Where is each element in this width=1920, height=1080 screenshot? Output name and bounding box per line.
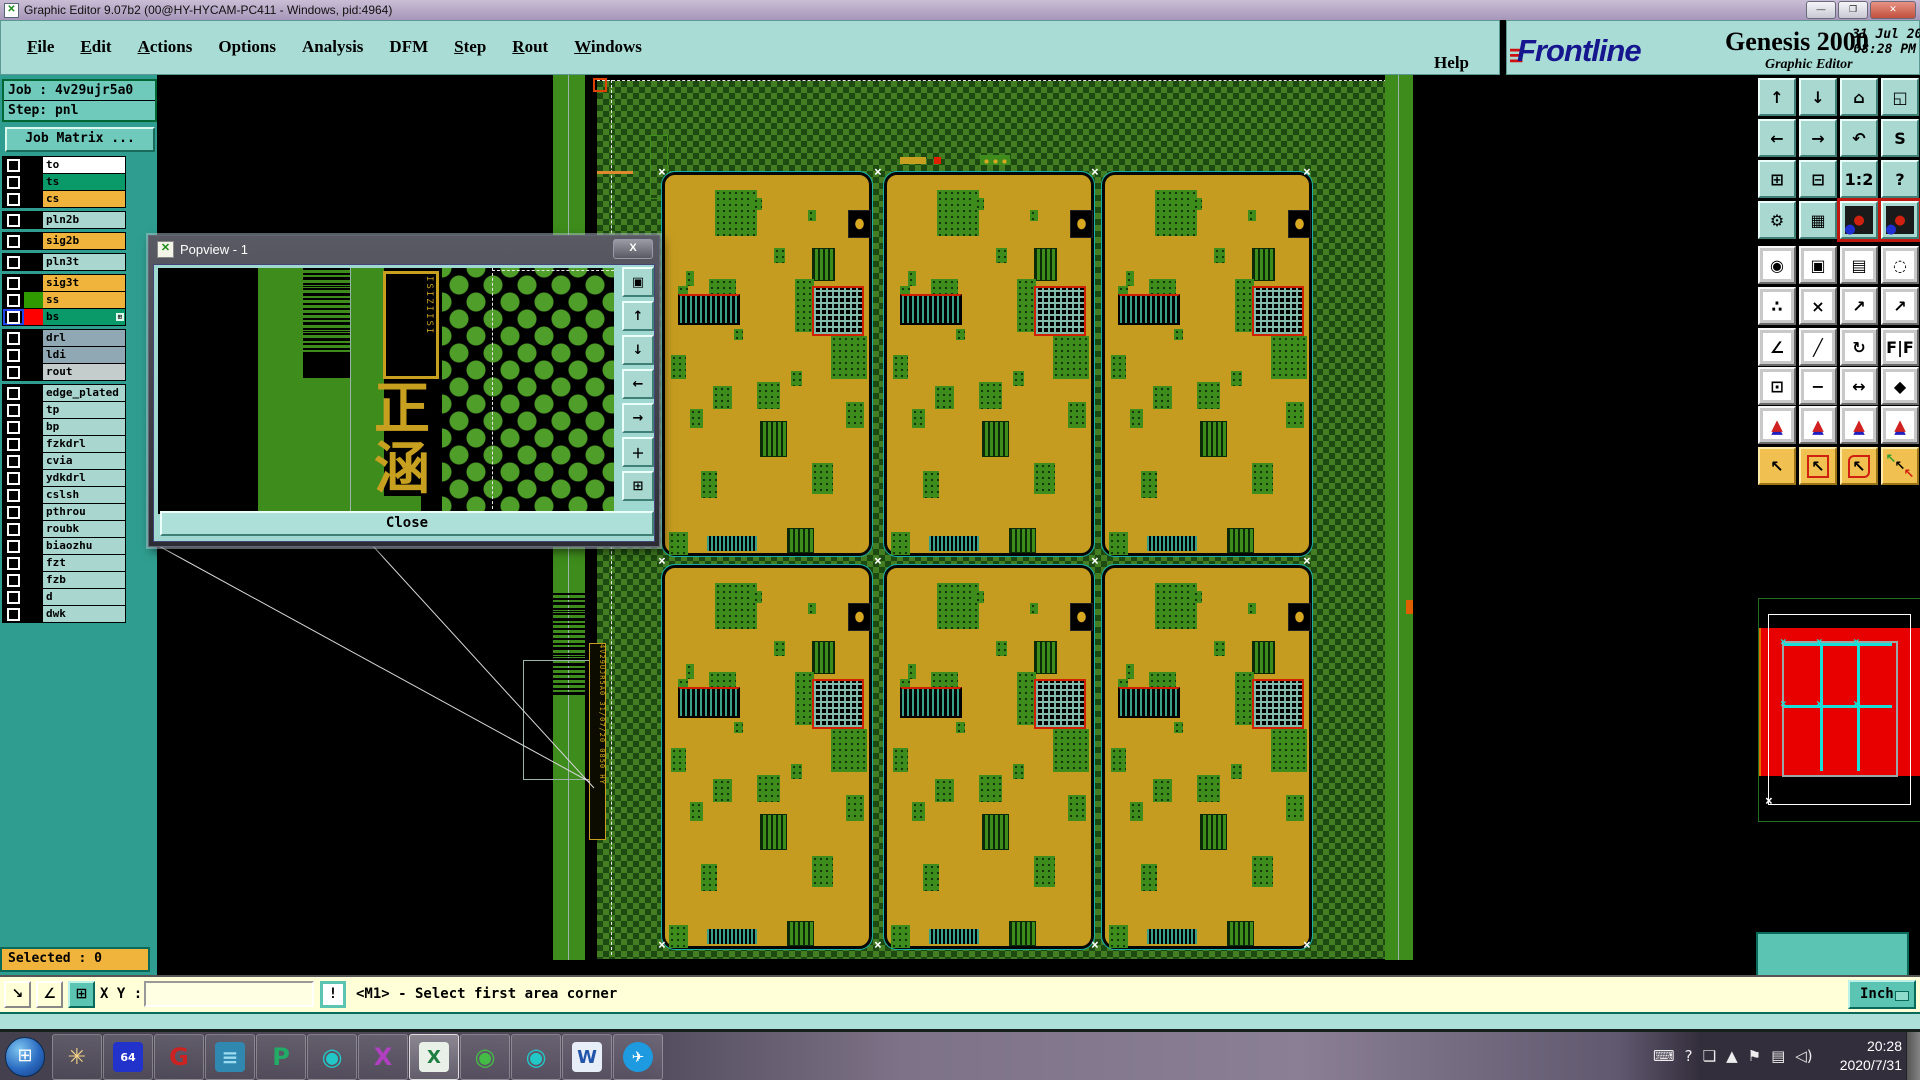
board-patch [690,409,703,428]
layer-name-ss[interactable]: ss [43,292,125,308]
board-chipgrid [982,814,1009,851]
line-measure-button[interactable]: − [1799,367,1837,405]
layer-checkbox-sig3t[interactable] [3,275,24,291]
board-patch [1286,795,1305,822]
layer-name-ydkdrl[interactable]: ydkdrl [43,470,125,486]
layer-swatch-rout[interactable] [24,364,43,380]
xshell-app-icon: ✳ [62,1042,92,1072]
pan-right-button[interactable]: → [622,403,654,433]
layer-name-pln2b[interactable]: pln2b [43,212,125,228]
board-patch [996,248,1007,263]
layer-row-fzkdrl[interactable]: fzkdrl [3,436,125,453]
notepad-app[interactable]: ≡ [205,1034,255,1080]
panel-board-6[interactable] [1102,565,1312,949]
layer-swatch-biaozhu[interactable] [24,538,43,554]
layer-checkbox-to[interactable] [3,157,24,173]
panel-board-5[interactable] [884,565,1094,949]
overview-x-mark: × [1853,700,1860,708]
layer-name-pln3t[interactable]: pln3t [43,254,125,270]
menu-edit[interactable]: Edit [80,37,111,57]
panel-outline-box [523,660,591,780]
panel-board-2[interactable] [884,172,1094,556]
excel-app[interactable]: X [409,1034,459,1080]
layer-swatch-bs[interactable] [24,309,43,325]
select-pointer-icon: ↖ [1763,452,1791,480]
board-patch [1214,248,1225,263]
measure-ruler-icon: ▤ [1845,251,1873,279]
layer-checkbox-ydkdrl[interactable] [3,470,24,486]
layer-name-cslsh[interactable]: cslsh [43,487,125,503]
pan-up-button[interactable]: ↑ [622,301,654,331]
layer-row-to[interactable]: to [3,157,125,174]
disc-app-3[interactable]: ◉ [511,1034,561,1080]
genesis-app[interactable]: G [154,1034,204,1080]
layer-checkbox-fzt[interactable] [3,555,24,571]
board-chipgrid [760,814,787,851]
layer-row-pln2b[interactable]: pln2b [3,212,125,228]
profile-button[interactable]: S [1881,119,1919,157]
layer-checkbox-biaozhu[interactable] [3,538,24,554]
pv-bracket-frame: ISIZIISI [383,271,439,379]
layer-checkbox-sig2b[interactable] [3,233,24,249]
pan-left-button[interactable]: ← [1758,119,1796,157]
overview-x-mark: × [1816,638,1823,646]
pv-char-2: 涵 [374,440,430,500]
layer-checkbox-rout[interactable] [3,364,24,380]
pan-left-button[interactable]: ← [622,369,654,399]
frontline-logo: Frontline [1517,33,1641,69]
layer-checkbox-fzkdrl[interactable] [3,436,24,452]
xshell-app[interactable]: ✳ [52,1034,102,1080]
layer-row-dwk[interactable]: dwk [3,606,125,622]
board-corner-mark: × [1303,557,1311,567]
layer-swatch-sig2b[interactable] [24,233,43,249]
netlist-b-icon: ● [1886,206,1914,234]
window-xy-button[interactable]: ◱ [1881,78,1919,116]
layer-row-biaozhu[interactable]: biaozhu [3,538,125,555]
board-patch [1197,382,1220,409]
layer-name-cvia[interactable]: cvia [43,453,125,469]
checkbox-icon [7,294,20,307]
board-corner-mark: × [1091,941,1099,951]
board-patch [671,355,686,378]
checkbox-icon [7,193,20,206]
board-conn [1118,294,1181,325]
panel-board-1[interactable] [662,172,872,556]
select-rect-button[interactable]: ↖ [1799,447,1837,485]
layer-checkbox-cslsh[interactable] [3,487,24,503]
popview-close-icon[interactable]: X [613,239,653,259]
board-patch [1013,764,1024,779]
layer-group: edge_platedtpbpfzkdrlcviaydkdrlcslshpthr… [2,384,126,623]
layer-row-tp[interactable]: tp [3,402,125,419]
board-cornerchip [1070,603,1093,632]
xy-input[interactable] [144,981,314,1007]
menu-actions[interactable]: Actions [138,37,193,57]
zoom-expand-button[interactable]: ⊞ [1758,160,1796,198]
layer-checkbox-pthrou[interactable] [3,504,24,520]
unit-dropdown[interactable]: Inch [1848,980,1916,1009]
net-link-button[interactable]: ∴ [1758,287,1796,325]
show-hidden-icon[interactable]: ▲ [1726,1047,1738,1065]
genesis-app-icon: G [164,1042,194,1072]
backup64-app[interactable]: 64 [103,1034,153,1080]
board-cornerchip [1288,210,1311,239]
board-patch [1153,386,1172,409]
previous-view-icon: ↶ [1845,124,1873,152]
layer-row-roubk[interactable]: roubk [3,521,125,538]
board-patch [937,583,979,629]
pan-right-button[interactable]: → [1799,119,1837,157]
point-measure-icon: ↗ [1845,292,1873,320]
menu-bar: FileEditActionsOptionsAnalysisDFMStepRou… [0,20,1500,75]
disc-app-2[interactable]: ◉ [460,1034,510,1080]
layer-swatch-tp[interactable] [24,402,43,418]
board-chipgrid [982,421,1009,458]
layer-name-bp[interactable]: bp [43,419,125,435]
line-measure-icon: − [1804,372,1832,400]
board-bga [1034,679,1086,729]
board-patch [1034,856,1055,887]
layer-swatch-dwk[interactable] [24,606,43,622]
setup-tools-icon: ⚙ [1763,206,1791,234]
scale-1-2-button[interactable]: 1:2 [1840,160,1878,198]
zoom-center-button[interactable]: ⊞ [622,471,654,501]
netlist-a-button[interactable]: ● [1840,201,1878,239]
layer-row-edge_plated[interactable]: edge_plated [3,385,125,402]
grid-window-button[interactable]: ⊞ [68,981,95,1008]
screen: ✕ Graphic Editor 9.07b2 (00@HY-HYCAM-PC4… [0,0,1920,1080]
board-patch [1155,583,1197,629]
popview-dialog: ✕ Popview - 1 X ISIZIISI 正 涵 ▣↑↓←→＋⊞ Clo… [148,235,660,547]
layer-swatch-ss[interactable] [24,292,43,308]
layer-swatch-bp[interactable] [24,419,43,435]
layer-checkbox-ts[interactable] [3,174,24,190]
job-info-box: Job : 4v29ujr5a0 Step: pnl [2,79,157,122]
start-button[interactable]: ⊞ [5,1037,45,1077]
board-patch [937,190,979,236]
angle-mode-button[interactable]: ∠ [36,981,63,1008]
action-center-icon[interactable]: ⚑ [1748,1047,1761,1065]
help-tray-icon[interactable]: ? [1685,1047,1693,1065]
snap-mode-button[interactable]: ↘ [4,981,31,1008]
layer-name-edge_plated[interactable]: edge_plated [43,385,125,401]
layer-checkbox-tp[interactable] [3,402,24,418]
board-chipgrid [787,528,814,553]
overview-x-mark: × [1816,700,1823,708]
zoom-fit-button[interactable]: ＋ [622,437,654,467]
disc-app-1[interactable]: ◉ [307,1034,357,1080]
network-tray-icon[interactable]: ▤ [1771,1047,1785,1065]
layer-name-to[interactable]: to [43,157,125,173]
menu-file[interactable]: File [27,37,54,57]
scale-1-2-icon: 1:2 [1845,165,1873,193]
zoom-shrink-button[interactable]: ⊟ [1799,160,1837,198]
board-patch [1271,336,1307,378]
layer-swatch-to[interactable] [24,157,43,173]
zoom-out-button[interactable]: ↓ [1799,78,1837,116]
board-patch [912,409,925,428]
layer-row-rout[interactable]: rout [3,364,125,380]
layer-name-bs[interactable]: bs⊞ [43,309,125,325]
layer-name-cs[interactable]: cs [43,191,125,207]
layer-row-ldi[interactable]: ldi [3,347,125,364]
job-label: Job : 4v29ujr5a0 [4,81,155,101]
layer-swatch-edge_plated[interactable] [24,385,43,401]
triangle-c-button[interactable]: ▲ [1840,406,1878,444]
board-patch [791,371,802,386]
layer-row-sig3t[interactable]: sig3t [3,275,125,292]
layer-row-cs[interactable]: cs [3,191,125,207]
layer-row-ts[interactable]: ts [3,174,125,191]
pv-char-1: 正 [374,380,430,440]
clear-highlight-button[interactable]: × [1799,287,1837,325]
backup64-app-icon: 64 [113,1042,143,1072]
close-button[interactable]: ✕ [1870,1,1916,19]
layer-checkbox-edge_plated[interactable] [3,385,24,401]
board-patch [956,722,964,734]
layer-row-d[interactable]: d [3,589,125,606]
p-app[interactable]: P [256,1034,306,1080]
board-patch [1271,729,1307,771]
layer-row-cslsh[interactable]: cslsh [3,487,125,504]
layer-swatch-pthrou[interactable] [24,504,43,520]
layer-checkbox-ldi[interactable] [3,347,24,363]
pan-down-button[interactable]: ↓ [622,335,654,365]
layer-swatch-drl[interactable] [24,330,43,346]
layer-name-biaozhu[interactable]: biaozhu [43,538,125,554]
board-patch [1030,603,1038,615]
layer-checkbox-d[interactable] [3,589,24,605]
copy-pad-icon: ⊡ [1763,372,1791,400]
layer-checkbox-pln2b[interactable] [3,212,24,228]
rotate-icon: ↻ [1845,333,1873,361]
layer-name-fzt[interactable]: fzt [43,555,125,571]
layer-checkbox-drl[interactable] [3,330,24,346]
layer-row-pln3t[interactable]: pln3t [3,254,125,270]
panel-board-3[interactable] [1102,172,1312,556]
layer-swatch-d[interactable] [24,589,43,605]
layer-row-pthrou[interactable]: pthrou [3,504,125,521]
checkbox-icon [7,256,20,269]
board-patch [1174,329,1182,341]
rotate-button[interactable]: ↻ [1840,328,1878,366]
point-measure-button[interactable]: ↗ [1840,287,1878,325]
layer-swatch-fzb[interactable] [24,572,43,588]
layer-checkbox-bs[interactable] [3,309,24,325]
layer-row-drl[interactable]: drl [3,330,125,347]
measure-ruler-button[interactable]: ▤ [1840,246,1878,284]
window-tray-icon[interactable]: ❏ [1703,1047,1716,1065]
board-patch [734,722,742,734]
layer-swatch-sig3t[interactable] [24,275,43,291]
layer-checkbox-fzb[interactable] [3,572,24,588]
board-patch [1130,802,1143,821]
point-measure-2-button[interactable]: ↗ [1881,287,1919,325]
board-patch [1248,210,1256,222]
layer-row-fzt[interactable]: fzt [3,555,125,572]
keyboard-tray-icon[interactable]: ⌨ [1653,1047,1675,1065]
layer-checkbox-pln3t[interactable] [3,254,24,270]
zoom-in-button[interactable]: ↑ [1758,78,1796,116]
layer-name-fzkdrl[interactable]: fzkdrl [43,436,125,452]
menu-help[interactable]: Help [1434,53,1469,73]
popview-frame: ISIZIISI 正 涵 ▣↑↓←→＋⊞ Close [153,264,655,542]
width-measure-button[interactable]: ↔ [1840,367,1878,405]
layer-swatch-ydkdrl[interactable] [24,470,43,486]
select-net-button[interactable]: ↖ [1881,447,1919,485]
select-poly-icon: ↖ [1845,452,1873,480]
disc-app-3-icon: ◉ [521,1042,551,1072]
layer-row-bp[interactable]: bp [3,419,125,436]
disc-app-1-icon: ◉ [317,1042,347,1072]
zoom-out-icon: ↓ [1804,83,1832,111]
xmanager-app-icon: X [368,1042,398,1072]
triangle-d-button[interactable]: ▲ [1881,406,1919,444]
layer-name-fzb[interactable]: fzb [43,572,125,588]
board-chipgrid [1227,921,1254,946]
board-chipgrid [1200,814,1227,851]
word-app[interactable]: W [562,1034,612,1080]
previous-view-button[interactable]: ↶ [1840,119,1878,157]
angle-measure-button[interactable]: ∠ [1758,328,1796,366]
help-button[interactable]: ? [1881,160,1919,198]
board-chipgrid [1252,641,1275,674]
minimize-button[interactable]: — [1806,1,1836,19]
popview-content[interactable]: ISIZIISI 正 涵 [158,268,614,514]
layer-name-ldi[interactable]: ldi [43,347,125,363]
layer-swatch-ts[interactable] [24,174,43,190]
notepad-app-icon: ≡ [215,1042,245,1072]
board-patch [979,775,1002,802]
triangle-a-button[interactable]: ▲ [1758,406,1796,444]
panel-board-4[interactable] [662,565,872,949]
copy-pad-button[interactable]: ⊡ [1758,367,1796,405]
checkbox-icon [7,455,20,468]
pv-dashed-hline [492,270,614,272]
menu-step[interactable]: Step [454,37,486,57]
job-matrix-button[interactable]: Job Matrix ... [5,127,155,152]
layer-group: sig2b [2,232,126,250]
layer-name-roubk[interactable]: roubk [43,521,125,537]
alert-button[interactable]: ! [320,981,346,1008]
restore-button[interactable]: ❐ [1838,1,1868,19]
layer-checkbox-ss[interactable] [3,292,24,308]
board-patch [1068,795,1087,822]
menu-rout[interactable]: Rout [512,37,548,57]
menu-analysis[interactable]: Analysis [302,37,363,57]
menu-options[interactable]: Options [218,37,276,57]
angle-measure-icon: ∠ [1763,333,1791,361]
dingtalk-app-icon: ✈ [623,1042,653,1072]
select-poly-button[interactable]: ↖ [1840,447,1878,485]
board-patch [996,641,1007,656]
layer-swatch-ldi[interactable] [24,347,43,363]
board-patch [753,591,761,603]
status-message: <M1> - Select first area corner [356,986,617,1002]
layer-swatch-pln3t[interactable] [24,254,43,270]
board-patch [975,591,983,603]
pad-select-button[interactable]: ◌ [1881,246,1919,284]
layer-row-ydkdrl[interactable]: ydkdrl [3,470,125,487]
layer-swatch-cslsh[interactable] [24,487,43,503]
xmanager-app[interactable]: X [358,1034,408,1080]
taskbar-clock[interactable]: 20:28 2020/7/31 [1840,1037,1902,1075]
layer-row-cvia[interactable]: cvia [3,453,125,470]
home-view-button[interactable]: ⌂ [1840,78,1878,116]
layer-name-pthrou[interactable]: pthrou [43,504,125,520]
frame-select-button[interactable]: ▣ [1799,246,1837,284]
layer-grid-icon: ⊞ [116,313,124,321]
layer-name-sig3t[interactable]: sig3t [43,275,125,291]
setup-tools-button[interactable]: ⚙ [1758,201,1796,239]
p-app-icon: P [266,1042,296,1072]
menu-windows[interactable]: Windows [574,37,642,57]
window-titlebar: ✕ Graphic Editor 9.07b2 (00@HY-HYCAM-PC4… [0,0,1920,20]
layer-row-fzb[interactable]: fzb [3,572,125,589]
layer-name-d[interactable]: d [43,589,125,605]
overview-grid-hline-mid [1784,705,1892,708]
layer-checkbox-roubk[interactable] [3,521,24,537]
select-pointer-button[interactable]: ↖ [1758,447,1796,485]
clear-highlight-icon: × [1804,292,1832,320]
board-patch [1248,603,1256,615]
grid-toggle-button[interactable]: ▦ [1799,201,1837,239]
layer-row-sig2b[interactable]: sig2b [3,233,125,249]
layer-swatch-cs[interactable] [24,191,43,207]
layer-name-tp[interactable]: tp [43,402,125,418]
highlight-pad-button[interactable]: ◉ [1758,246,1796,284]
checkbox-icon [7,366,20,379]
board-patch [669,925,688,948]
layer-name-dwk[interactable]: dwk [43,606,125,622]
layer-name-ts[interactable]: ts [43,174,125,190]
board-patch [891,532,910,555]
popview-window-button[interactable]: ▣ [622,267,654,297]
dingtalk-app[interactable]: ✈ [613,1034,663,1080]
layer-swatch-fzkdrl[interactable] [24,436,43,452]
mirror-button[interactable]: F|F [1881,328,1919,366]
layer-swatch-fzt[interactable] [24,555,43,571]
popview-titlebar[interactable]: ✕ Popview - 1 X [149,236,659,262]
unit-label: Inch [1860,986,1894,1002]
layer-name-rout[interactable]: rout [43,364,125,380]
panel-overview-map[interactable]: ×××××× × [1758,598,1920,822]
layer-checkbox-bp[interactable] [3,419,24,435]
layer-checkbox-cs[interactable] [3,191,24,207]
netlist-b-button[interactable]: ● [1881,201,1919,239]
fiducial-strip-yellow [900,157,926,164]
layer-swatch-roubk[interactable] [24,521,43,537]
point-measure-2-icon: ↗ [1886,292,1914,320]
layer-checkbox-dwk[interactable] [3,606,24,622]
popview-icon: ✕ [157,241,174,258]
layer-name-sig2b[interactable]: sig2b [43,233,125,249]
layer-checkbox-cvia[interactable] [3,453,24,469]
show-desktop-button[interactable] [1906,1032,1920,1080]
shape-select-button[interactable]: ◆ [1881,367,1919,405]
popview-close-button[interactable]: Close [160,511,654,536]
menu-dfm[interactable]: DFM [389,37,428,57]
triangle-b-button[interactable]: ▲ [1799,406,1837,444]
layer-name-drl[interactable]: drl [43,330,125,346]
slope-measure-button[interactable]: ╱ [1799,328,1837,366]
layer-swatch-pln2b[interactable] [24,212,43,228]
layer-row-ss[interactable]: ss [3,292,125,309]
volume-tray-icon[interactable]: ◁) [1795,1047,1812,1065]
layer-swatch-cvia[interactable] [24,453,43,469]
layer-row-bs[interactable]: bs⊞ [3,309,125,325]
